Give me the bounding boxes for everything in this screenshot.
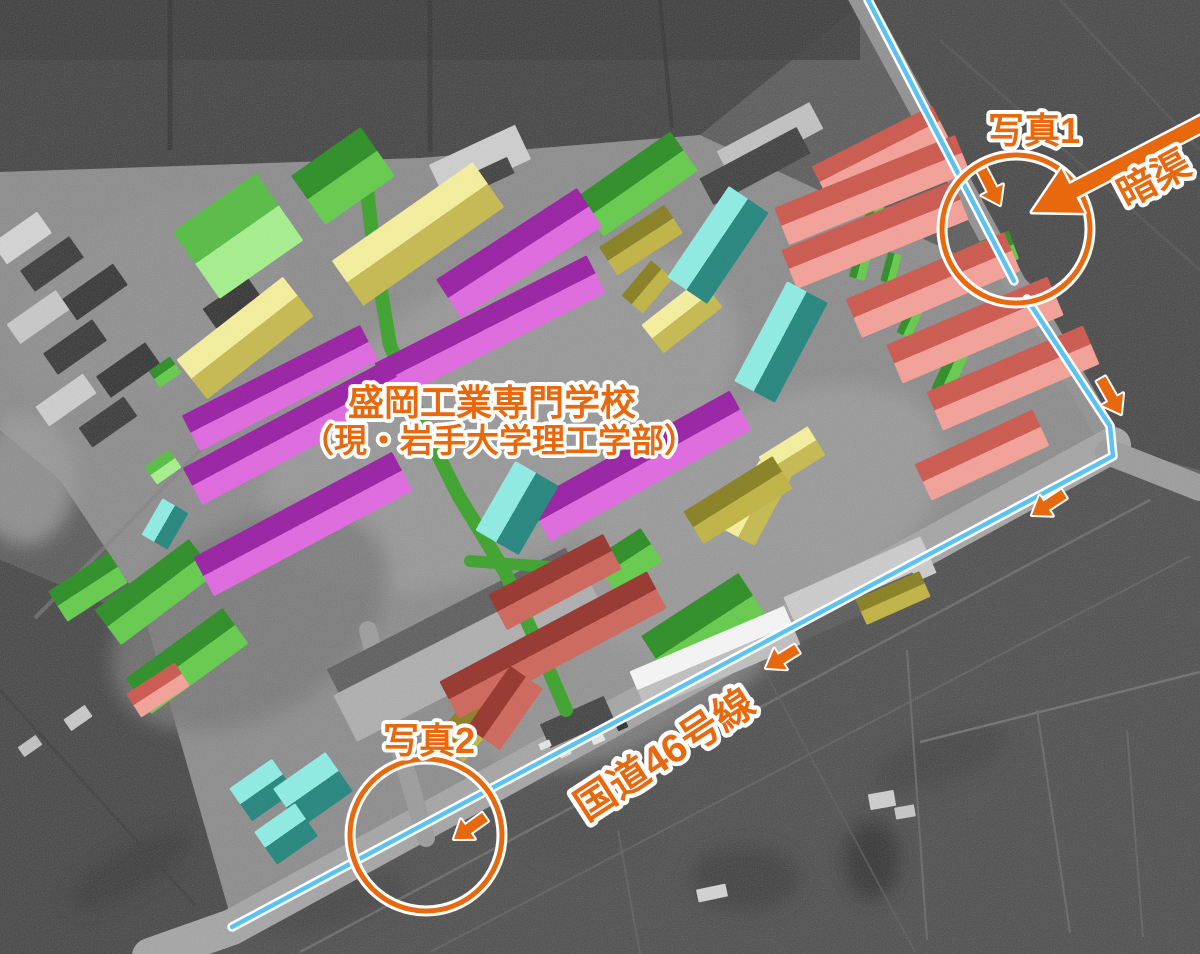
label-photo2: 写真2 (383, 720, 475, 761)
annotated-aerial-photo: 盛岡工業専門学校（現・岩手大学理工学部）写真1写真2暗渠国道46号線 (0, 0, 1200, 954)
label-photo1: 写真1 (988, 110, 1080, 151)
aerial-photo-canvas: 盛岡工業専門学校（現・岩手大学理工学部）写真1写真2暗渠国道46号線 (0, 0, 1200, 954)
label-school-title-line2: （現・岩手大学理工学部） (301, 422, 697, 459)
label-school-title-line1: 盛岡工業専門学校 (348, 382, 636, 423)
